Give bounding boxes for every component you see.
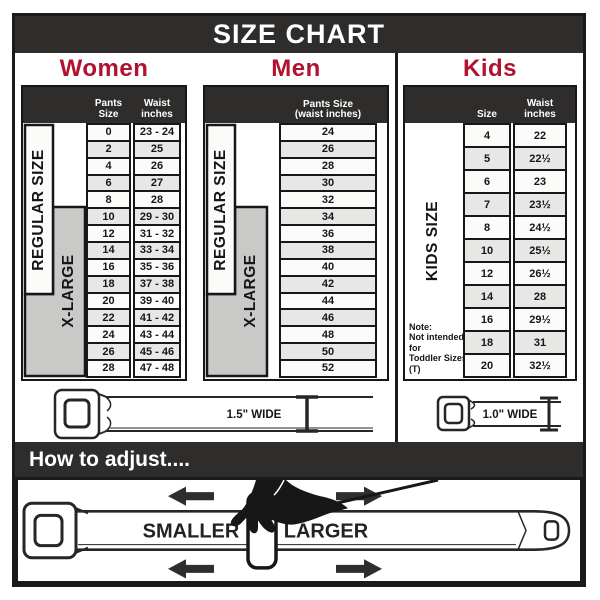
kids-section-title: Kids [403, 54, 577, 84]
kids-header-size: Size [463, 110, 511, 121]
kids-row-cell: 6 [463, 169, 511, 194]
kids-size-table: Size Waist inches KIDS SIZE Note: Not in… [403, 85, 577, 381]
kids-note: Note: Not intended for Toddler Sizes (T) [409, 322, 469, 375]
kids-row-cell: 18 [463, 330, 511, 355]
men-col-size: 242628303234363840424446485052 [279, 123, 377, 378]
belt-tip [518, 511, 569, 549]
women-col-size: 0246810121416182022242628 [86, 123, 131, 378]
kids-size-label: KIDS SIZE [424, 201, 441, 281]
kids-row-cell: 22½ [513, 146, 567, 171]
kids-row-cell: 28 [513, 284, 567, 309]
kids-row-cell: 12 [463, 261, 511, 286]
women-header-waist: Waist inches [133, 99, 181, 120]
kids-table-header: Size Waist inches [405, 87, 575, 123]
kids-row-cell: 4 [463, 123, 511, 148]
kids-row-cell: 16 [463, 307, 511, 332]
women-size-table: Pants Size Waist inches REGULAR SIZE X-L… [21, 85, 187, 381]
kids-row-cell: 25½ [513, 238, 567, 263]
kids-row-cell: 32½ [513, 353, 567, 378]
width-measure-icon [296, 397, 318, 431]
kids-row-cell: 14 [463, 284, 511, 309]
kids-row-cell: 7 [463, 192, 511, 217]
men-table-header: Pants Size (waist inches) [205, 87, 387, 123]
kids-note-line2: Not intended for [409, 332, 469, 353]
kids-row-cell: 10 [463, 238, 511, 263]
men-row-cell: 52 [279, 359, 377, 378]
kids-note-line3: Toddler Sizes (T) [409, 353, 469, 374]
women-regular-label: REGULAR SIZE [30, 149, 47, 270]
how-to-adjust-banner: How to adjust.... [15, 442, 583, 477]
adjust-illustration: SMALLER LARGER [15, 477, 583, 584]
adjust-illustration-svg: SMALLER LARGER [18, 480, 580, 581]
kids-belt-graphic: 1.0" WIDE [433, 391, 575, 437]
kids-row-cell: 5 [463, 146, 511, 171]
adult-belt-width-label: 1.5" WIDE [227, 409, 282, 421]
adult-belt-graphic: 1.5" WIDE [49, 385, 387, 443]
kids-col-size: 45678101214161820 [463, 123, 511, 378]
kids-row-cell: 31 [513, 330, 567, 355]
men-side-labels: REGULAR SIZE X-LARGE [205, 123, 269, 378]
kids-row-cell: 23 [513, 169, 567, 194]
women-table-header: Pants Size Waist inches [23, 87, 185, 123]
women-row-cell: 47 - 48 [133, 359, 181, 378]
arrow-left-top-icon [168, 487, 214, 506]
kids-header-waist: Waist inches [513, 99, 567, 120]
men-section-title: Men [203, 54, 389, 84]
women-xlarge-label: X-LARGE [60, 254, 77, 327]
arrow-right-bottom-icon [336, 559, 382, 578]
men-size-table: Pants Size (waist inches) REGULAR SIZE X… [203, 85, 389, 381]
seatbelt-buckle-icon [438, 397, 469, 430]
men-xlarge-label: X-LARGE [242, 254, 259, 327]
men-header-line2: (waist inches) [279, 110, 377, 121]
smaller-label: SMALLER [143, 520, 240, 542]
arrow-left-bottom-icon [168, 559, 214, 578]
men-regular-label: REGULAR SIZE [212, 149, 229, 270]
kids-note-line1: Note: [409, 322, 469, 333]
women-row-cell: 28 [86, 359, 131, 378]
kids-row-cell: 22 [513, 123, 567, 148]
women-side-labels: REGULAR SIZE X-LARGE [23, 123, 87, 378]
size-chart-frame: SIZE CHART Women Men Kids Pants Size Wai… [12, 13, 586, 587]
kids-belt-width-label: 1.0" WIDE [483, 409, 538, 421]
kids-row-cell: 20 [463, 353, 511, 378]
kids-row-cell: 8 [463, 215, 511, 240]
kids-col-waist: 2222½2323½24½25½26½2829½3132½ [513, 123, 567, 378]
women-header-pants-size: Pants Size [86, 99, 131, 120]
kids-row-cell: 24½ [513, 215, 567, 240]
section-divider [395, 53, 398, 442]
women-col-waist: 23 - 242526272829 - 3031 - 3233 - 3435 -… [133, 123, 181, 378]
seatbelt-buckle-icon [55, 390, 109, 438]
women-section-title: Women [21, 54, 187, 84]
kids-row-cell: 23½ [513, 192, 567, 217]
kids-row-cell: 26½ [513, 261, 567, 286]
kids-row-cell: 29½ [513, 307, 567, 332]
page-title: SIZE CHART [15, 16, 583, 53]
